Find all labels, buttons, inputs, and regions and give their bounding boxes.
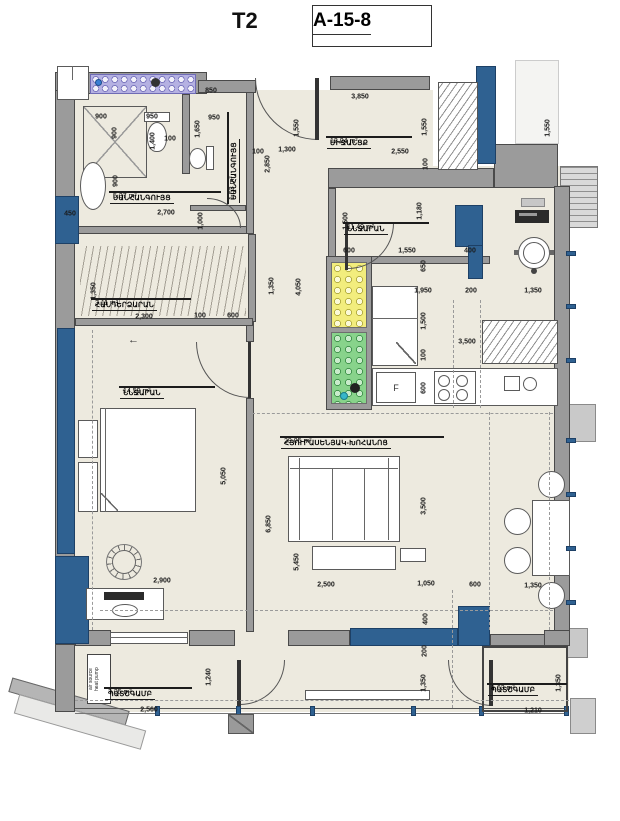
monitor-symbol [104,592,144,600]
dimension-label: 950 [208,115,220,122]
dresser [78,462,98,512]
dimension-label: 1,350 [421,674,428,692]
window-tick [566,304,576,309]
door-leaf [248,342,251,398]
dimension-label: 1,350 [524,288,542,295]
dimension-label: 1,400 [150,132,157,150]
dimension-label: 400 [464,248,476,255]
boiler-inner [523,242,545,264]
dimension-label: 1,050 [417,581,435,588]
unit-code-label: A-15-8 [313,6,371,35]
room-area: 29.05 m² [281,437,315,447]
wall [189,630,235,646]
window-tick [566,546,576,551]
dimension-label: 3,500 [421,497,428,515]
dimension-label: 2,900 [153,578,171,585]
dashed-line [453,300,454,408]
column [455,205,483,247]
dimension-label: 600 [421,382,428,394]
wall [328,168,494,188]
sofa-back-line [290,468,398,469]
washbasin-symbol [80,162,106,210]
dimension-label: 5,450 [294,553,301,571]
dimension-label: 1,550 [294,119,301,137]
dimension-label: 650 [421,260,428,272]
exterior-block [515,60,559,144]
outdoor-unit [228,714,254,734]
column [350,628,458,646]
pier-line [72,66,73,80]
room-label-4: ՆՆՋԱՐԱՆ11.49 m² [343,222,429,224]
dining-table [532,500,570,576]
dimension-label: 100 [252,149,264,156]
sink-basin [504,376,520,391]
dimension-label: 1,550 [545,119,552,137]
dimension-label: 1,350 [524,583,542,590]
coffee-table [312,546,396,570]
pier-box [57,66,89,100]
entry-arrow-icon: ← [128,334,139,346]
closet-hatch [482,320,558,364]
dashed-line [252,413,558,414]
dimension-label: 1,240 [206,668,213,686]
dimension-label: 1,300 [278,147,296,154]
washer-dot-dark [151,78,160,87]
dimension-label: 1,950 [414,288,432,295]
dimension-label: 900 [113,175,120,187]
window-tick [566,438,576,443]
dimension-label: 1,350 [556,674,563,692]
dimension-label: 1,500 [343,212,350,230]
dimension-label: 600 [227,313,239,320]
dimension-label: 1,350 [91,282,98,300]
dashed-line [480,300,481,408]
room-area: 3.35 m² [105,688,135,698]
dimension-label: 100 [164,136,176,143]
wall [330,76,430,90]
room-area: 14.59 m² [120,387,154,397]
shaft-green [331,332,367,404]
wall [494,144,558,188]
side-table [400,548,426,562]
dimension-label: 3,850 [351,94,369,101]
nightstand [78,420,98,458]
window-glazing-line [110,637,188,638]
dimension-label: 950 [146,114,158,121]
room-area: 3.11 m² [92,299,121,309]
room-area: 1.63 m² [488,684,518,694]
washer-dot-blue [95,79,102,86]
dashed-line [452,590,453,708]
unit-type-label: T2 [232,8,258,34]
room-area: 12.04 m² [327,137,361,147]
dimension-label: 600 [343,248,355,255]
sofa-arm-line [299,458,300,540]
sink-basin-round [523,377,537,391]
wall [55,644,75,712]
dashed-line [75,700,569,701]
dashed-line [489,412,490,630]
window-tick [566,600,576,605]
room-label-3: ՄԻՋԱՆՑՔ12.04 m² [326,136,412,138]
window-tick [566,358,576,363]
wall [248,234,256,322]
closet-hatch [438,82,478,170]
heat-pump-line2: heat pump [94,667,100,691]
room-label-8: ՊԱՏՇԳԱՄԲ3.35 m² [104,687,192,689]
dimension-label: 200 [465,288,477,295]
bed-fold [101,493,118,511]
dimension-label: 2,700 [157,210,175,217]
dashed-line [92,330,93,630]
exterior-block [566,404,596,442]
dimension-label: 400 [423,613,430,625]
room-area: 5.37 m² [110,192,140,202]
wall [328,188,336,258]
sofa-arm-line [388,458,389,540]
washer-strip [90,74,196,94]
dining-chair [538,471,565,498]
window [110,632,188,644]
shaft-yellow [331,262,367,328]
unit-code-box: A-15-8 [312,5,432,47]
dimension-label: 3,500 [458,339,476,346]
dining-chair [504,508,531,535]
dimension-label: 2,300 [135,314,153,321]
column [55,196,79,244]
room-label-7: ՀՅՈՒՐԱՍԵՆՅԱԿ-ԽՈՀԱՆՈՑ29.05 m² [280,436,444,438]
wall [246,92,254,234]
dimension-label: 1,500 [421,312,428,330]
railing-post [411,706,416,716]
burner [456,375,468,387]
room-label-1: ՍԱՆՀԱՆԳՈՒՅՑ5.37 m² [109,191,221,193]
dimension-label: 4,050 [296,278,303,296]
room-area: 1.53 m² [228,173,238,203]
burner [456,389,468,401]
railing-post [310,706,315,716]
column [458,606,490,646]
dimension-label: 2,850 [265,155,272,173]
dimension-label: 450 [64,211,76,218]
dimension-label: 6,850 [266,515,273,533]
room-label-2: ՍԱՆՀԱՆԳՈՒՅՑ1.53 m² [227,112,229,204]
floor-plan: T2 A-15-8 [0,0,620,821]
dimension-label: 1,210 [524,708,542,715]
dimension-label: 1,180 [417,202,424,220]
boiler-bracket [549,250,554,255]
wall [490,634,546,646]
window-tick [566,492,576,497]
dashed-line [100,610,558,611]
column [57,328,75,554]
dining-chair [504,547,531,574]
cabinet-line [372,318,418,319]
shaft-dot-teal [340,392,348,400]
dimension-label: 1,550 [422,118,429,136]
dimension-label: 5,050 [221,467,228,485]
dimension-label: 200 [422,645,429,657]
column [55,556,89,644]
boiler-valve [531,268,537,274]
dimension-label: 2,560 [140,707,158,714]
window-tick [566,251,576,256]
dimension-label: 600 [469,582,481,589]
boiler-bracket [514,250,519,255]
cabinet-corner [396,342,416,364]
toilet-symbol [189,148,206,169]
wall [288,630,350,646]
sofa-cushion-line [364,468,365,540]
door-leaf [315,78,319,140]
column [476,66,496,164]
burner [438,389,450,401]
dimension-label: 1,550 [398,248,416,255]
dimension-label: 900 [95,114,107,121]
dashed-line [549,412,550,630]
wall [544,630,570,646]
balcony-bench [305,690,430,700]
burner [438,375,450,387]
exterior-block [570,698,596,734]
sofa-cushion-line [332,468,333,540]
dimension-label: 2,550 [391,149,409,156]
toilet-tank [206,146,214,170]
dimension-label: 1,650 [195,120,202,138]
dimension-label: 1,350 [269,277,276,295]
vent-symbol [521,198,545,207]
room-label-6: ՆՆՋԱՐԱՆ14.59 m² [119,386,215,388]
dimension-label: 2,500 [317,582,335,589]
dimension-label: 1,000 [198,212,205,230]
room-label-5: ՀԱՆԴԵՐՁԱՐԱՆ3.11 m² [91,298,191,300]
shaft-dot-dark [350,383,360,393]
ac-slit [519,213,537,216]
fridge-symbol: F [376,372,416,403]
dimension-label: 100 [421,349,428,361]
wall [246,398,254,632]
dimension-label: 100 [194,313,206,320]
dimension-label: 900 [112,127,119,139]
plant-pot [112,550,136,574]
dimension-label: 100 [423,158,430,170]
dimension-label: 850 [205,88,217,95]
ac-unit-symbol [515,210,549,223]
